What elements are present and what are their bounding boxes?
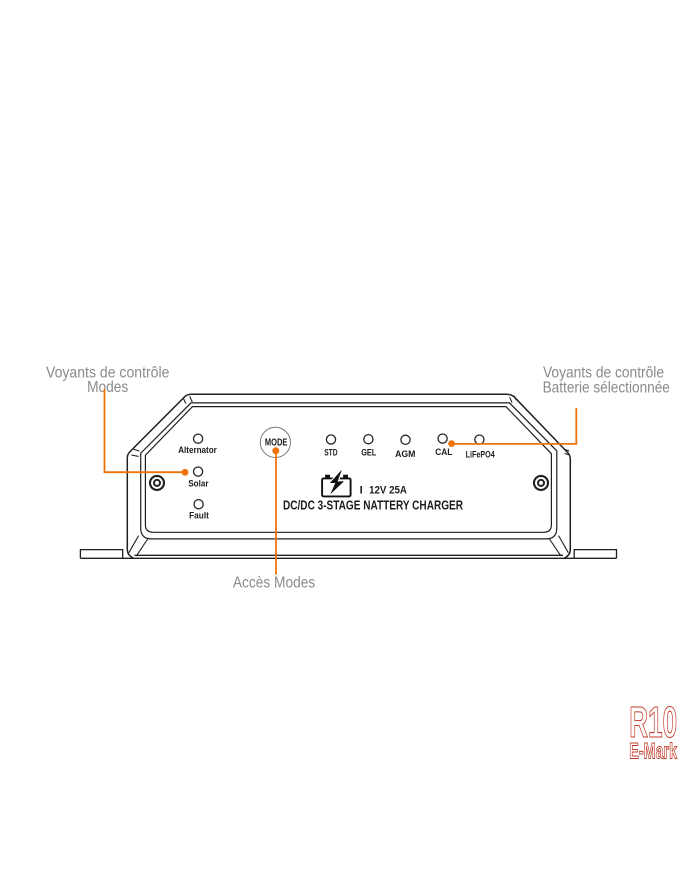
svg-text:GEL: GEL (361, 447, 376, 458)
svg-text:LiFePO4: LiFePO4 (466, 450, 496, 461)
svg-text:Solar: Solar (188, 479, 208, 490)
svg-text:12V 25A: 12V 25A (369, 484, 407, 496)
svg-text:AGM: AGM (395, 449, 415, 460)
svg-text:MODE: MODE (265, 438, 288, 449)
svg-text:Accès Modes: Accès Modes (233, 574, 316, 591)
svg-text:Fault: Fault (189, 510, 209, 521)
svg-text:I: I (360, 484, 363, 496)
svg-text:STD: STD (324, 448, 337, 459)
svg-text:DC/DC 3-STAGE NATTERY CHARGER: DC/DC 3-STAGE NATTERY CHARGER (283, 498, 463, 512)
svg-text:Batterie sélectionnée: Batterie sélectionnée (543, 379, 670, 396)
svg-text:Alternator: Alternator (178, 445, 217, 456)
svg-text:E-Mark: E-Mark (629, 739, 677, 764)
svg-text:Modes: Modes (87, 379, 128, 396)
svg-text:CAL: CAL (435, 447, 452, 458)
